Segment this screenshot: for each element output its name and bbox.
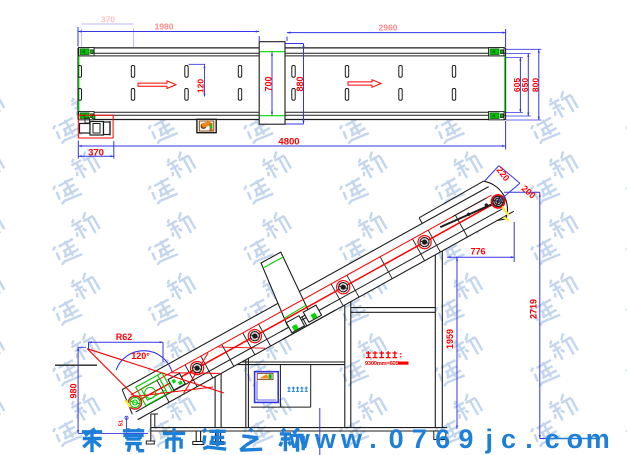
svg-text:7: 7 <box>412 424 427 454</box>
svg-text:776: 776 <box>470 247 485 257</box>
svg-text:6: 6 <box>435 424 450 454</box>
svg-text:1959: 1959 <box>445 329 455 349</box>
svg-text:.: . <box>525 424 533 454</box>
svg-text:1980: 1980 <box>155 22 174 32</box>
svg-text:c: c <box>501 424 516 454</box>
svg-text:j: j <box>484 424 493 454</box>
svg-text:4800: 4800 <box>278 136 299 147</box>
svg-text:0: 0 <box>389 424 404 454</box>
svg-text:9300mm=605: 9300mm=605 <box>365 361 399 367</box>
svg-text:51: 51 <box>119 419 125 426</box>
svg-text:w: w <box>314 424 337 454</box>
svg-text:9: 9 <box>458 424 473 454</box>
svg-text:370: 370 <box>88 147 104 158</box>
svg-text:2960: 2960 <box>379 23 398 33</box>
svg-text:980: 980 <box>69 383 79 398</box>
svg-text:700: 700 <box>264 76 274 91</box>
svg-text:800: 800 <box>530 78 540 92</box>
svg-text:120: 120 <box>196 79 206 93</box>
svg-text:w: w <box>288 424 311 454</box>
svg-text:880: 880 <box>295 76 305 91</box>
svg-text:.: . <box>369 424 377 454</box>
svg-text:w: w <box>340 424 363 454</box>
svg-text:650: 650 <box>520 78 530 92</box>
svg-text:R62: R62 <box>116 332 133 342</box>
svg-text:120°: 120° <box>131 351 150 361</box>
svg-text:370: 370 <box>101 15 115 25</box>
svg-text:2719: 2719 <box>529 299 539 319</box>
